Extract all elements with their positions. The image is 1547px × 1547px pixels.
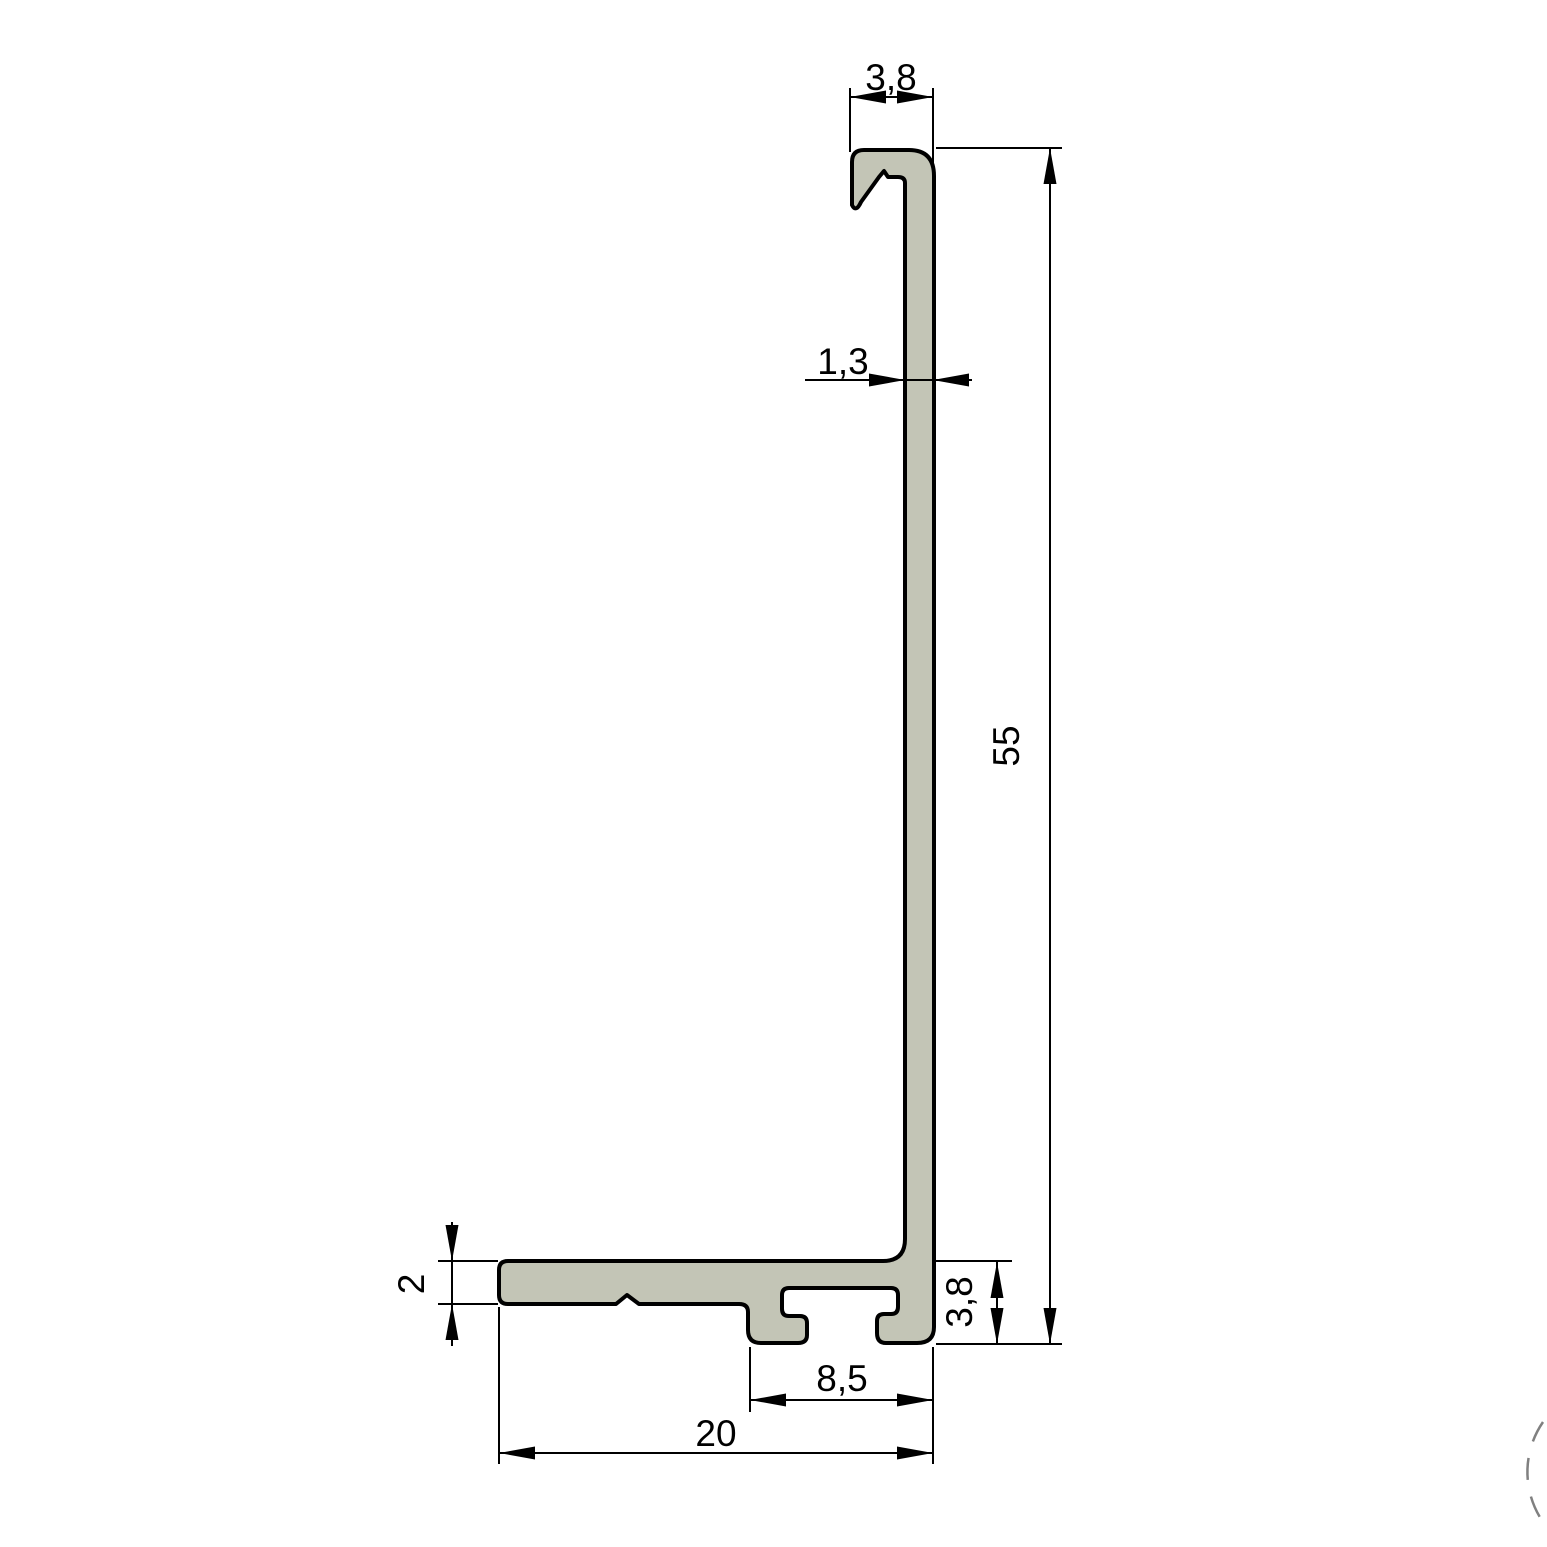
arrowhead-channel-top [991, 1262, 1004, 1298]
watermark-arc [1527, 1422, 1543, 1522]
dimension-lines [452, 97, 1050, 1453]
dim-label-channel-width: 8,5 [816, 1358, 867, 1399]
dim-label-wall-thickness: 1,3 [817, 341, 868, 382]
arrowhead-height-top [1044, 148, 1057, 184]
dim-label-flange-thickness: 2 [391, 1274, 432, 1295]
arrowhead-wall-right [933, 374, 969, 387]
dim-label-total-height: 55 [986, 725, 1027, 766]
arrowheads [446, 91, 1057, 1460]
arrowhead-total-width-right [897, 1447, 933, 1460]
arrowhead-channel-width-left [750, 1394, 786, 1407]
arrowhead-wall-left [869, 374, 905, 387]
arrowhead-channel-width-right [897, 1394, 933, 1407]
drawing-svg: 3,8 1,3 55 2 3,8 8,5 20 [0, 0, 1547, 1547]
arrowhead-channel-bottom [991, 1308, 1004, 1344]
dim-label-total-width: 20 [695, 1413, 736, 1454]
technical-drawing-canvas: 3,8 1,3 55 2 3,8 8,5 20 [0, 0, 1547, 1547]
arrowhead-total-width-left [499, 1447, 535, 1460]
arrowhead-flange-top [446, 1225, 459, 1261]
arrowhead-flange-bottom [446, 1304, 459, 1340]
extension-lines [438, 88, 1062, 1464]
profile-outline [499, 150, 934, 1343]
dim-label-hook-width: 3,8 [865, 57, 916, 98]
dim-label-channel-height: 3,8 [939, 1276, 980, 1327]
arrowhead-height-bottom [1044, 1308, 1057, 1344]
